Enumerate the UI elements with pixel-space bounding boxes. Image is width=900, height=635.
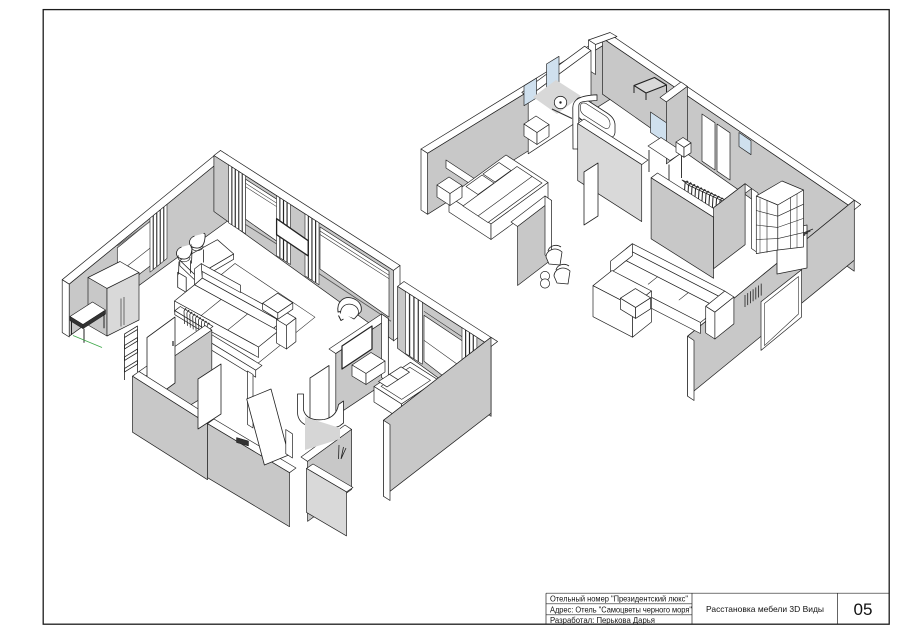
svg-text:Расстановка мебели 3D Виды: Расстановка мебели 3D Виды — [706, 604, 824, 614]
svg-text:Адрес: Отель "Самоцветы черно: Адрес: Отель "Самоцветы черного моря" — [550, 604, 692, 614]
svg-text:Разработал: Перькова Дарья: Разработал: Перькова Дарья — [550, 615, 655, 625]
svg-text:Отельный номер "Президентский: Отельный номер "Президентский люкс" — [550, 593, 688, 603]
svg-text:05: 05 — [854, 601, 873, 619]
